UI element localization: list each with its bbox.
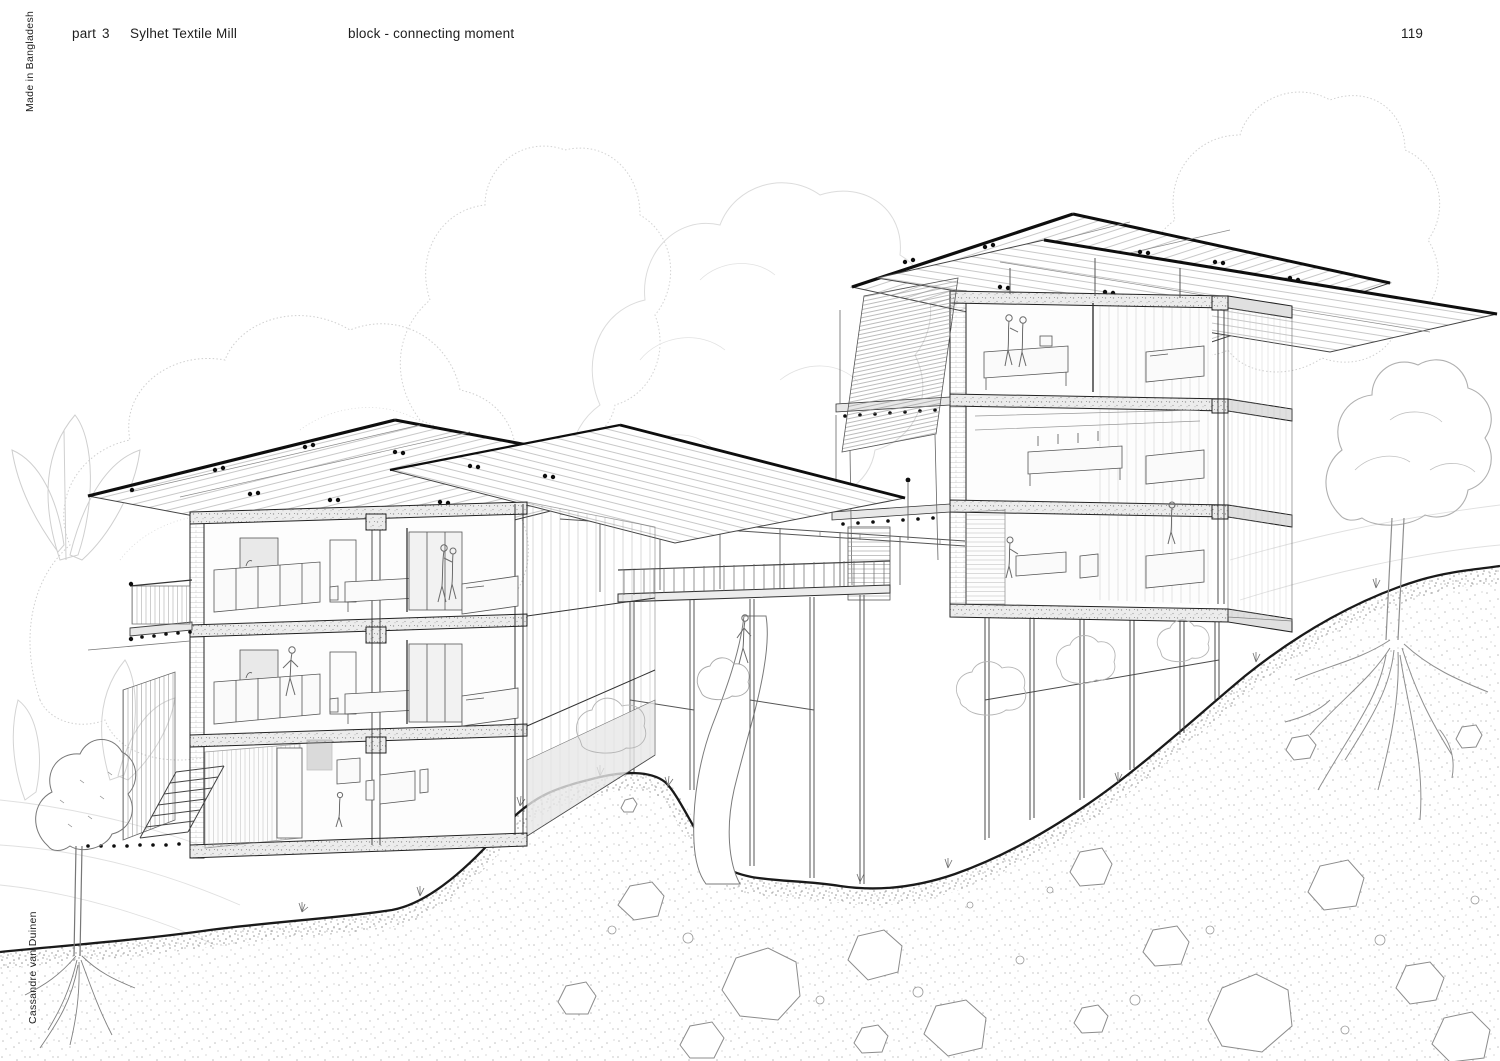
background-tree-mid — [400, 146, 670, 457]
left-balcony-walk — [88, 641, 190, 650]
portfolio-page: part 3 Sylhet Textile Mill block - conne… — [0, 0, 1500, 1061]
root-plant-foliage — [36, 739, 136, 850]
header-project-title: Sylhet Textile Mill — [130, 26, 237, 41]
margin-text-author: Cassandre van Duinen — [27, 911, 39, 1024]
left-building — [86, 420, 905, 858]
bushes-under-right-building — [576, 620, 1209, 753]
sectional-perspective-drawing — [0, 0, 1500, 1061]
left-corner-column — [515, 504, 523, 835]
header-part-number: 3 — [102, 26, 110, 41]
right-louver-screen — [842, 278, 958, 452]
right-cut-wall — [950, 291, 966, 617]
left-balcony — [130, 580, 192, 636]
header-drawing-title: block - connecting moment — [348, 26, 514, 41]
margin-text-made-in-bangladesh: Made in Bangladesh — [24, 11, 36, 112]
header-part-label: part — [72, 26, 96, 41]
root-plant-stem — [74, 846, 82, 956]
root-tree-canopy — [1326, 360, 1491, 525]
right-side-face — [1228, 308, 1292, 621]
background-tree-center-scallops — [640, 264, 858, 450]
right-columns — [1212, 296, 1228, 604]
root-tree-canopy-scallops — [1355, 412, 1475, 472]
ground-footpath — [694, 616, 768, 884]
left-base-dots — [86, 842, 181, 848]
page-number: 119 — [1401, 26, 1423, 41]
root-plant-spots — [60, 772, 112, 827]
walkway-post-dot — [906, 478, 911, 483]
